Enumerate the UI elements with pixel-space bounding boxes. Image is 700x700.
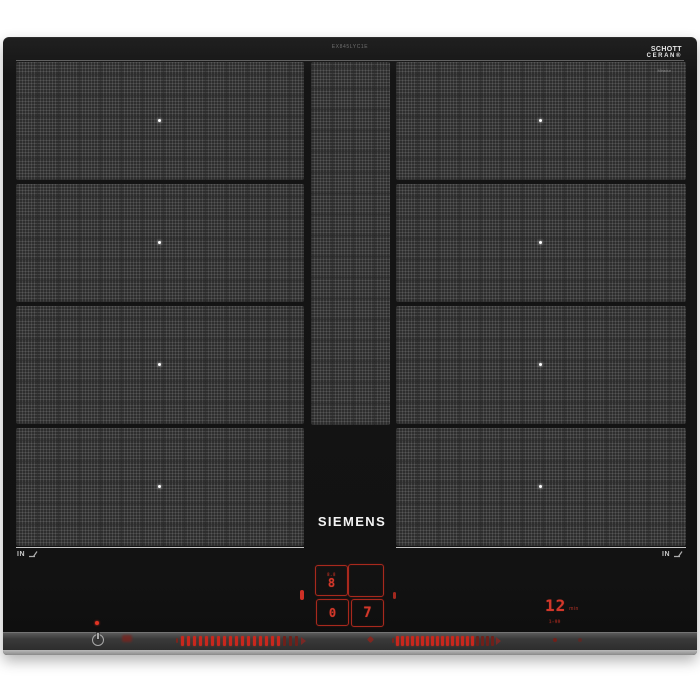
zone-center-dot [158,363,161,366]
glass-subbrand-label: Miradur [657,68,671,73]
display-left-top-value: 8 [328,577,335,589]
display-power-left-bottom[interactable]: 0 [316,599,349,626]
power-slider-right[interactable] [392,635,506,646]
display-left-top-sublabel: 8.8 [327,573,336,577]
display-right-bottom-value: 7 [363,606,371,620]
key-lock-icon [122,635,132,642]
glass-top-divider [16,60,684,61]
slider-arrow-icon [496,637,501,645]
cooking-zone-center-strip [311,62,390,425]
induction-mark-left: IN [17,550,38,558]
cooking-zone-left-3 [16,306,304,424]
zone-select-indicator-right [393,592,396,599]
slider-start-mark [392,638,394,643]
cooking-zone-right-3 [396,306,686,424]
zone-center-dot [539,363,542,366]
cooking-zone-right-2 [396,184,686,302]
slider-arrow-icon [301,637,306,645]
slider-start-mark [176,638,178,643]
display-left-bottom-value: 0 [329,607,336,619]
zone-underline-left [16,547,304,548]
display-power-right-bottom[interactable]: 7 [351,599,384,627]
cooking-zone-left-4 [16,428,304,546]
timer-sublabel: 1-99 [549,619,561,624]
zone-select-indicator-left [300,590,304,600]
timer-display[interactable]: 12 min [545,598,579,614]
cooking-zone-left-1 [16,62,304,180]
display-power-right-top[interactable] [348,564,384,597]
schott-logo-line2: CERAN® [647,53,682,60]
schott-ceran-logo: SCHOTT CERAN® [647,46,682,60]
zone-center-dot [539,119,542,122]
cooking-zone-left-2 [16,184,304,302]
function-touch-dot[interactable] [578,638,582,642]
zone-center-dot [158,119,161,122]
zone-center-dot [158,485,161,488]
cooking-zone-right-1 [396,62,686,180]
zone-underline-right [396,547,686,548]
status-led [95,621,99,625]
control-strip [3,632,697,650]
slider-bars[interactable] [181,636,298,646]
zone-center-dot [539,485,542,488]
model-code-label: EX845LYC1E [3,44,697,50]
induction-hob: EX845LYC1E SCHOTT CERAN® Miradur IN IN S… [3,37,697,655]
timer-unit-label: min [569,606,579,612]
display-power-left-top[interactable]: 8.8 8 [315,565,348,596]
induction-mark-left-label: IN [17,551,25,558]
zone-center-dot [158,241,161,244]
zone-center-dot [539,241,542,244]
induction-mark-right: IN [662,550,683,558]
induction-mark-right-label: IN [662,551,670,558]
power-icon[interactable] [92,634,104,646]
front-bevel [3,650,697,655]
timer-value: 12 [545,598,566,614]
timer-touch-dot[interactable] [553,638,557,642]
brand-logo: SIEMENS [277,514,427,529]
power-slider-left[interactable] [176,635,306,646]
induction-pan-icon [28,550,38,558]
schott-logo-line1: SCHOTT [647,46,682,53]
cooking-zone-right-4 [396,428,686,546]
induction-pan-icon [673,550,683,558]
slider-bars[interactable] [396,636,494,646]
